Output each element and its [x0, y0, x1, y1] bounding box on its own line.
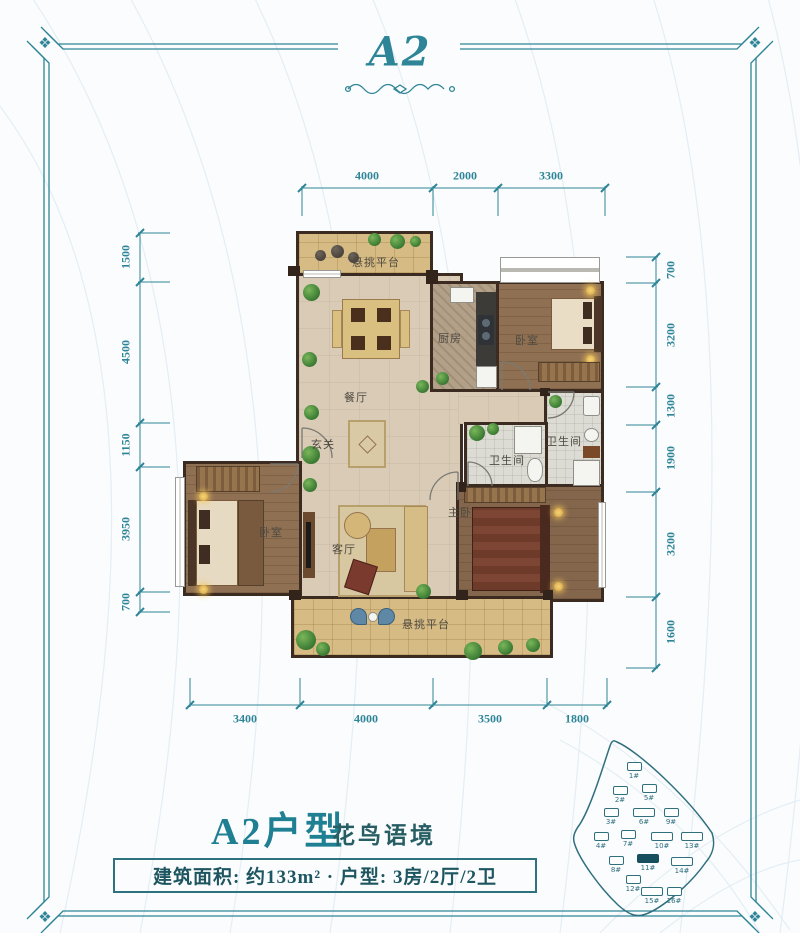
room-label-dining: 餐厅 [344, 389, 368, 405]
floorplan-poster: { "logo": {"text": "A2"}, "frame": {"cor… [0, 0, 800, 933]
siteplan-building: 7# [615, 830, 641, 848]
room-label-bedroom-left: 卧室 [259, 524, 283, 540]
wall-pillar [540, 388, 550, 396]
siteplan-building: 10# [649, 832, 675, 850]
plant [469, 425, 485, 441]
pillow [199, 510, 210, 529]
place-setting [351, 308, 365, 322]
bay-window-left [175, 477, 185, 587]
room-label-bath-ensuite: 卫生间 [489, 452, 525, 468]
dim-top-2: 2000 [453, 169, 477, 184]
tv [306, 522, 311, 568]
fridge [476, 366, 497, 388]
plant [416, 584, 431, 599]
wall-pillar [456, 482, 466, 492]
plant [436, 372, 449, 385]
siteplan-building: 4# [588, 832, 614, 850]
corner-ornament-icon: ❖ [748, 34, 761, 52]
wall-pillar [543, 590, 553, 600]
dim-left-1: 1500 [119, 245, 134, 269]
bedside-lamp [554, 582, 563, 591]
plant [303, 478, 317, 492]
room-label-kitchen: 厨房 [438, 330, 462, 346]
building-label: 3# [606, 818, 616, 826]
building-label: 10# [655, 842, 670, 850]
building-label: 6# [639, 818, 649, 826]
building-label: 8# [611, 866, 621, 874]
plant [316, 642, 330, 656]
plant [368, 233, 381, 246]
room-label-foyer: 玄关 [311, 436, 335, 452]
building-label: 2# [615, 796, 625, 804]
bay-window-top-right [500, 257, 600, 283]
bed-headboard [594, 296, 602, 352]
foyer-rug [348, 420, 386, 468]
building-icon [633, 808, 655, 817]
room-label-bath-common: 卫生间 [546, 433, 582, 449]
dim-left-2: 4500 [119, 340, 134, 364]
wall-pillar [288, 266, 300, 276]
bedside-lamp [199, 585, 208, 594]
building-label: 15# [645, 897, 660, 905]
dim-right-6: 1600 [664, 620, 679, 644]
balcony-chair [350, 608, 367, 625]
building-icon [651, 832, 673, 841]
bed-headboard [188, 500, 196, 586]
building-label: 9# [666, 818, 676, 826]
plan-title: A2户型 [211, 800, 345, 855]
building-icon [627, 762, 642, 771]
wardrobe [196, 466, 260, 492]
plant [498, 640, 513, 655]
plant [526, 638, 540, 652]
dim-bottom-3: 3500 [478, 712, 502, 727]
bed-headboard [540, 505, 550, 593]
room-label-master-bedroom: 主卧 [448, 504, 472, 520]
rug-motif [358, 435, 376, 453]
planter-pot [331, 245, 344, 258]
bedside-lamp [199, 492, 208, 501]
wall-pillar [456, 590, 468, 600]
plan-info-bar: 建筑面积: 约133m² · 户型: 3房/2厅/2卫 [113, 858, 537, 893]
balcony-chair [378, 608, 395, 625]
plant [549, 395, 562, 408]
plan-logo: A2 [369, 29, 432, 76]
room-label-balcony-top: 悬挑平台 [352, 254, 400, 270]
dim-right-3: 1300 [664, 394, 679, 418]
plant [302, 352, 317, 367]
plan-subtitle: 花鸟语境 [332, 816, 436, 850]
dim-left-3: 1150 [119, 433, 134, 456]
pillow [583, 302, 592, 319]
sofa [404, 506, 428, 592]
room-label-balcony-bottom: 悬挑平台 [402, 616, 450, 632]
building-label: 4# [596, 842, 606, 850]
dim-right-1: 700 [664, 261, 679, 279]
burner [482, 319, 490, 327]
wardrobe [538, 362, 600, 382]
pillow [199, 545, 210, 564]
siteplan-building: 14# [669, 857, 695, 875]
wardrobe [464, 487, 546, 503]
dining-chair [332, 310, 342, 348]
building-label: 11# [641, 864, 656, 872]
logo-flourish-icon [340, 80, 460, 98]
dim-left-5: 700 [119, 593, 134, 611]
shower [514, 426, 542, 454]
washing-machine [583, 396, 600, 416]
building-icon [613, 786, 628, 795]
corner-ornament-icon: ❖ [38, 34, 51, 52]
bath-cabinet [583, 446, 600, 458]
place-setting [377, 336, 391, 350]
siteplan-building: 5# [636, 784, 662, 802]
planter-pot [315, 250, 326, 261]
corner-ornament-icon: ❖ [38, 908, 51, 926]
building-label: 5# [644, 794, 654, 802]
building-icon [664, 808, 679, 817]
building-icon [609, 856, 624, 865]
plan-info-text: 建筑面积: 约133m² · 户型: 3房/2厅/2卫 [153, 862, 497, 889]
dim-top-1: 4000 [355, 169, 379, 184]
dim-bottom-1: 3400 [233, 712, 257, 727]
dim-right-2: 3200 [664, 323, 679, 347]
armchair-round [344, 512, 371, 539]
window-master [598, 502, 606, 588]
plant [487, 423, 499, 435]
corner-ornament-icon: ❖ [748, 908, 761, 926]
building-icon [667, 887, 682, 896]
plant [390, 234, 405, 249]
siteplan-building: 8# [603, 856, 629, 874]
place-setting [351, 336, 365, 350]
siteplan-building-highlighted: 11# [635, 854, 661, 872]
dining-table [342, 299, 400, 359]
bed-blanket [238, 500, 264, 586]
stove [478, 315, 494, 345]
building-label: 1# [629, 772, 639, 780]
building-icon [626, 875, 641, 884]
building-icon [594, 832, 609, 841]
dim-right-5: 3200 [664, 532, 679, 556]
building-icon [681, 832, 703, 841]
shower [573, 460, 600, 486]
building-label: 7# [623, 840, 633, 848]
dim-bottom-4: 1800 [565, 712, 589, 727]
siteplan-building: 1# [621, 762, 647, 780]
burner [482, 332, 490, 340]
building-icon [641, 887, 663, 896]
siteplan-building: 6# [631, 808, 657, 826]
kitchen-sink [450, 287, 474, 303]
dim-bottom-2: 4000 [354, 712, 378, 727]
siteplan-building: 9# [658, 808, 684, 826]
bedside-lamp [554, 508, 563, 517]
room-label-living: 客厅 [332, 541, 356, 557]
plant [296, 630, 316, 650]
toilet [527, 458, 543, 482]
plant [410, 236, 421, 247]
building-icon [621, 830, 636, 839]
building-icon [604, 808, 619, 817]
place-setting [377, 308, 391, 322]
wall-pillar [289, 590, 301, 600]
bed [472, 507, 542, 591]
building-icon [642, 784, 657, 793]
building-label: 13# [685, 842, 700, 850]
dim-top-3: 3300 [539, 169, 563, 184]
corridor [458, 392, 550, 424]
plant [304, 405, 319, 420]
building-label: 16# [667, 897, 682, 905]
siteplan-building: 16# [661, 887, 687, 905]
plant [303, 284, 320, 301]
window-dining [303, 270, 341, 278]
building-label: 14# [675, 867, 690, 875]
building-icon [671, 857, 693, 866]
siteplan-building: 2# [607, 786, 633, 804]
plant [416, 380, 429, 393]
building-icon [637, 854, 659, 863]
washbasin [584, 428, 599, 442]
siteplan-building: 13# [679, 832, 705, 850]
dim-right-4: 1900 [664, 446, 679, 470]
balcony-table [368, 612, 378, 622]
dim-left-4: 3950 [119, 517, 134, 541]
room-label-bedroom-top-right: 卧室 [515, 332, 539, 348]
wall-pillar [426, 270, 438, 284]
pillow [583, 327, 592, 344]
plant [464, 642, 482, 660]
dining-chair [400, 310, 410, 348]
bedside-lamp [586, 286, 595, 295]
siteplan-building: 3# [598, 808, 624, 826]
